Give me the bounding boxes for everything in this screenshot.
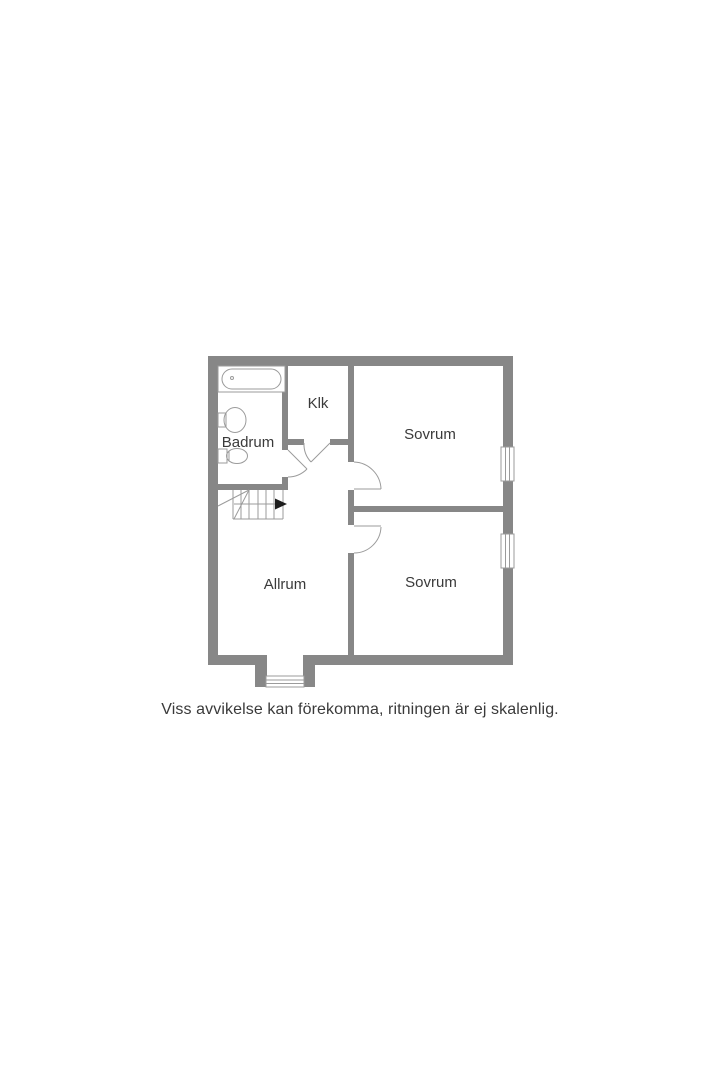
window-frame [501,534,514,568]
door-swing-arc [304,443,311,462]
room-label-klk: Klk [308,395,329,412]
door-sovrum-2 [354,526,381,553]
door-leaf [311,443,330,462]
wall-badrum-bottom [218,484,288,490]
toilet-tank [218,449,227,463]
stair-direction-arrow-icon [275,499,287,510]
wall-hall-sovrum-mid [348,490,354,525]
interior-walls [218,366,503,655]
wall-right [503,356,513,665]
window-sovrum-2 [501,534,514,568]
wall-bottom-left [208,655,255,665]
window-frame [266,676,304,687]
floor-plan: Badrum Klk Sovrum Allrum Sovrum [0,0,720,1080]
window-entrance [266,676,304,687]
window-frame [501,447,514,481]
outer-walls [208,356,513,687]
room-label-badrum: Badrum [222,434,275,451]
room-label-allrum: Allrum [264,576,307,593]
door-swing-arc [354,527,381,553]
room-label-sovrum-2: Sovrum [405,574,457,591]
door-swing-arc [354,462,381,489]
disclaimer-text: Viss avvikelse kan förekomma, ritningen … [0,701,720,719]
room-label-sovrum-1: Sovrum [404,426,456,443]
recess-wall-right [303,655,315,687]
bathtub-icon [218,366,285,392]
recess-wall-left [255,655,267,687]
wall-hall-sovrum-top [348,366,354,462]
wall-bottom-right [315,655,513,665]
wall-left [208,356,218,665]
wall-top [208,356,513,366]
wall-klk-bottom-left [288,439,304,445]
door-swing-arc [288,469,307,477]
door-leaf [288,450,307,469]
stairs-icon [218,490,287,519]
door-badrum [288,450,307,477]
door-sovrum-1 [354,462,381,489]
sink-icon [218,408,246,433]
wall-between-bedrooms [354,506,503,512]
door-klk [304,443,330,462]
sink-basin [224,408,246,433]
window-sovrum-1 [501,447,514,481]
wall-klk-bottom-right [330,439,348,445]
page: { "colors": { "background": "#ffffff", "… [0,0,720,1080]
wall-allrum-sovrum [348,553,354,655]
